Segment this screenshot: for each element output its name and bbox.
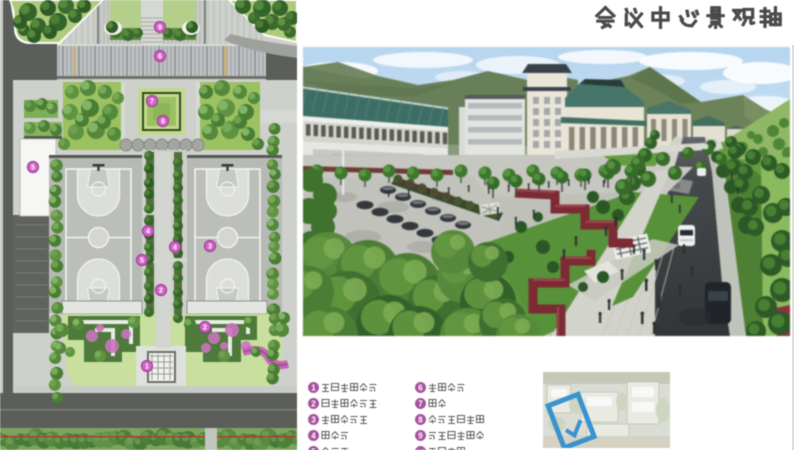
svg-text:4: 4 (146, 229, 150, 236)
svg-text:2: 2 (311, 399, 316, 408)
svg-text:5: 5 (31, 165, 35, 172)
svg-text:1: 1 (311, 383, 316, 392)
svg-text:2: 2 (159, 288, 163, 295)
svg-text:3: 3 (208, 244, 212, 251)
svg-text:9: 9 (158, 25, 162, 32)
svg-text:9: 9 (418, 431, 423, 440)
svg-text:5: 5 (140, 258, 144, 265)
svg-text:4: 4 (311, 431, 316, 440)
svg-text:7: 7 (418, 399, 423, 408)
svg-text:1: 1 (145, 364, 149, 371)
svg-text:7: 7 (150, 99, 154, 106)
svg-text:6: 6 (418, 383, 423, 392)
svg-text:3: 3 (311, 415, 316, 424)
svg-text:6: 6 (158, 54, 162, 61)
svg-text:8: 8 (418, 415, 423, 424)
svg-text:8: 8 (161, 119, 165, 126)
svg-text:4: 4 (173, 245, 177, 252)
svg-text:2: 2 (203, 325, 207, 332)
